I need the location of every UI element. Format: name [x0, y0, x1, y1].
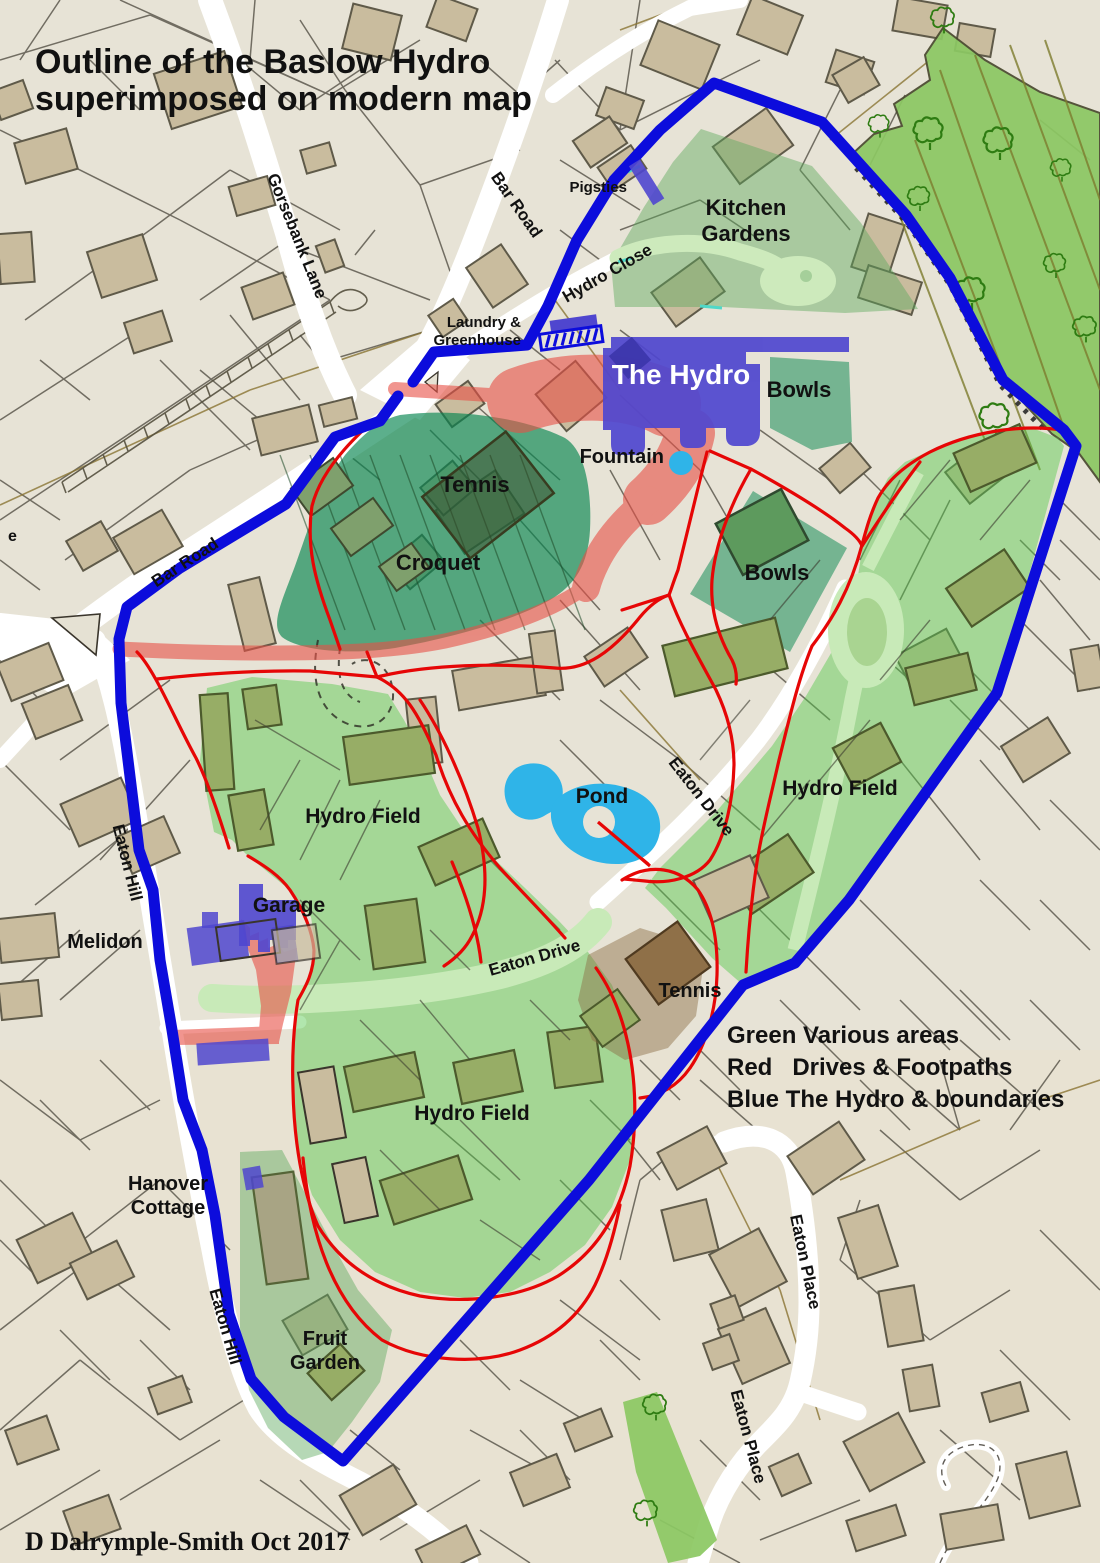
svg-text:Kitchen: Kitchen: [706, 195, 787, 220]
svg-text:Croquet: Croquet: [396, 550, 481, 575]
svg-text:Hanover: Hanover: [128, 1173, 208, 1195]
svg-text:Greenhouse: Greenhouse: [433, 332, 521, 349]
svg-text:Fruit: Fruit: [303, 1328, 348, 1350]
svg-text:Garage: Garage: [253, 894, 325, 917]
svg-text:superimposed on modern map: superimposed on modern map: [35, 80, 532, 118]
svg-text:Fountain: Fountain: [580, 446, 664, 468]
svg-text:The Hydro: The Hydro: [612, 359, 750, 390]
svg-text:Outline of the Baslow Hydro: Outline of the Baslow Hydro: [35, 43, 490, 81]
svg-text:Bowls: Bowls: [745, 560, 810, 585]
svg-text:e: e: [8, 528, 17, 545]
svg-text:Garden: Garden: [290, 1352, 360, 1374]
svg-text:Blue The Hydro & boundaries: Blue The Hydro & boundaries: [727, 1086, 1064, 1113]
svg-text:Hydro Field: Hydro Field: [414, 1102, 530, 1125]
svg-text:Bowls: Bowls: [767, 377, 832, 402]
svg-text:Melidon: Melidon: [67, 931, 143, 953]
svg-text:Hydro Field: Hydro Field: [305, 805, 421, 828]
svg-text:Pond: Pond: [576, 785, 629, 808]
svg-text:Tennis: Tennis: [440, 472, 509, 497]
svg-text:Tennis: Tennis: [659, 980, 722, 1002]
svg-text:Laundry &: Laundry &: [447, 314, 521, 331]
svg-text:Cottage: Cottage: [131, 1197, 205, 1219]
svg-text:Pigsties: Pigsties: [569, 179, 627, 196]
svg-text:Green Various areas: Green Various areas: [727, 1022, 959, 1049]
svg-text:Red Drives & Footpaths: Red Drives & Footpaths: [727, 1054, 1012, 1081]
svg-text:D Dalrymple-Smith Oct 2017: D Dalrymple-Smith Oct 2017: [25, 1527, 349, 1556]
svg-text:Hydro Field: Hydro Field: [782, 777, 898, 800]
svg-text:Gardens: Gardens: [701, 221, 790, 246]
